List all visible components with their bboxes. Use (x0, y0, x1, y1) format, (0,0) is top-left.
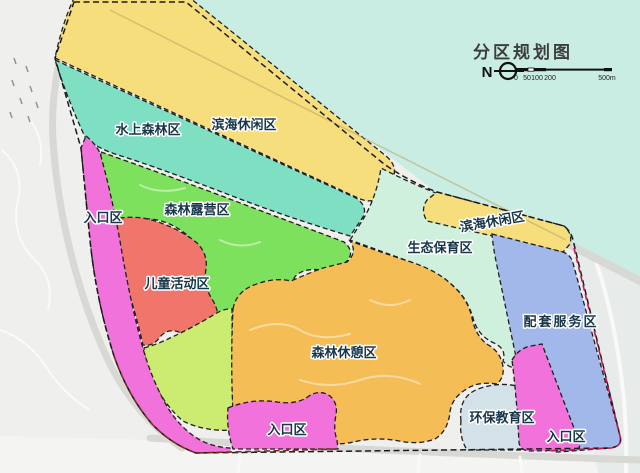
scale-tick: 200 (544, 75, 556, 82)
scale-tick: 50 (523, 75, 531, 82)
zone-label-shengtai-baoyu: 生态保育区 (407, 240, 472, 255)
minor-road (238, 452, 240, 473)
zone-label-peitao-fuwu: 配套服务区 (523, 314, 598, 329)
zone-label-rukou-south: 入口区 (267, 422, 306, 437)
minor-road (418, 455, 420, 473)
zone-label-senlin-xiuqi: 森林休憩区 (311, 345, 376, 360)
north-label: N (482, 64, 493, 81)
zone-label-rukou-east: 入口区 (546, 429, 585, 444)
map-canvas: 滨海休闲区 水上森林区 森林露营区 入口区 儿童活动区 生态保育区 滨海休闲区 … (0, 0, 640, 473)
zone-label-senlin-luying: 森林露营区 (164, 202, 229, 217)
scale-end-label: 500m (598, 75, 616, 82)
zone-label-ertong-huodong: 儿童活动区 (143, 276, 209, 291)
minor-road (520, 457, 522, 473)
zone-label-rukou-west: 入口区 (83, 210, 122, 225)
zone-label-binhai-band: 滨海休闲区 (211, 117, 276, 132)
zone-label-huanbao-jiaoyu: 环保教育区 (469, 410, 534, 425)
scale-tick: 0 (514, 75, 518, 82)
scale-tick: 100 (531, 75, 543, 82)
map-title: 分区规划图 (473, 42, 573, 62)
zoning-planning-map: 滨海休闲区 水上森林区 森林露营区 入口区 儿童活动区 生态保育区 滨海休闲区 … (0, 0, 640, 473)
zone-label-shuishang-senlin: 水上森林区 (115, 122, 180, 137)
